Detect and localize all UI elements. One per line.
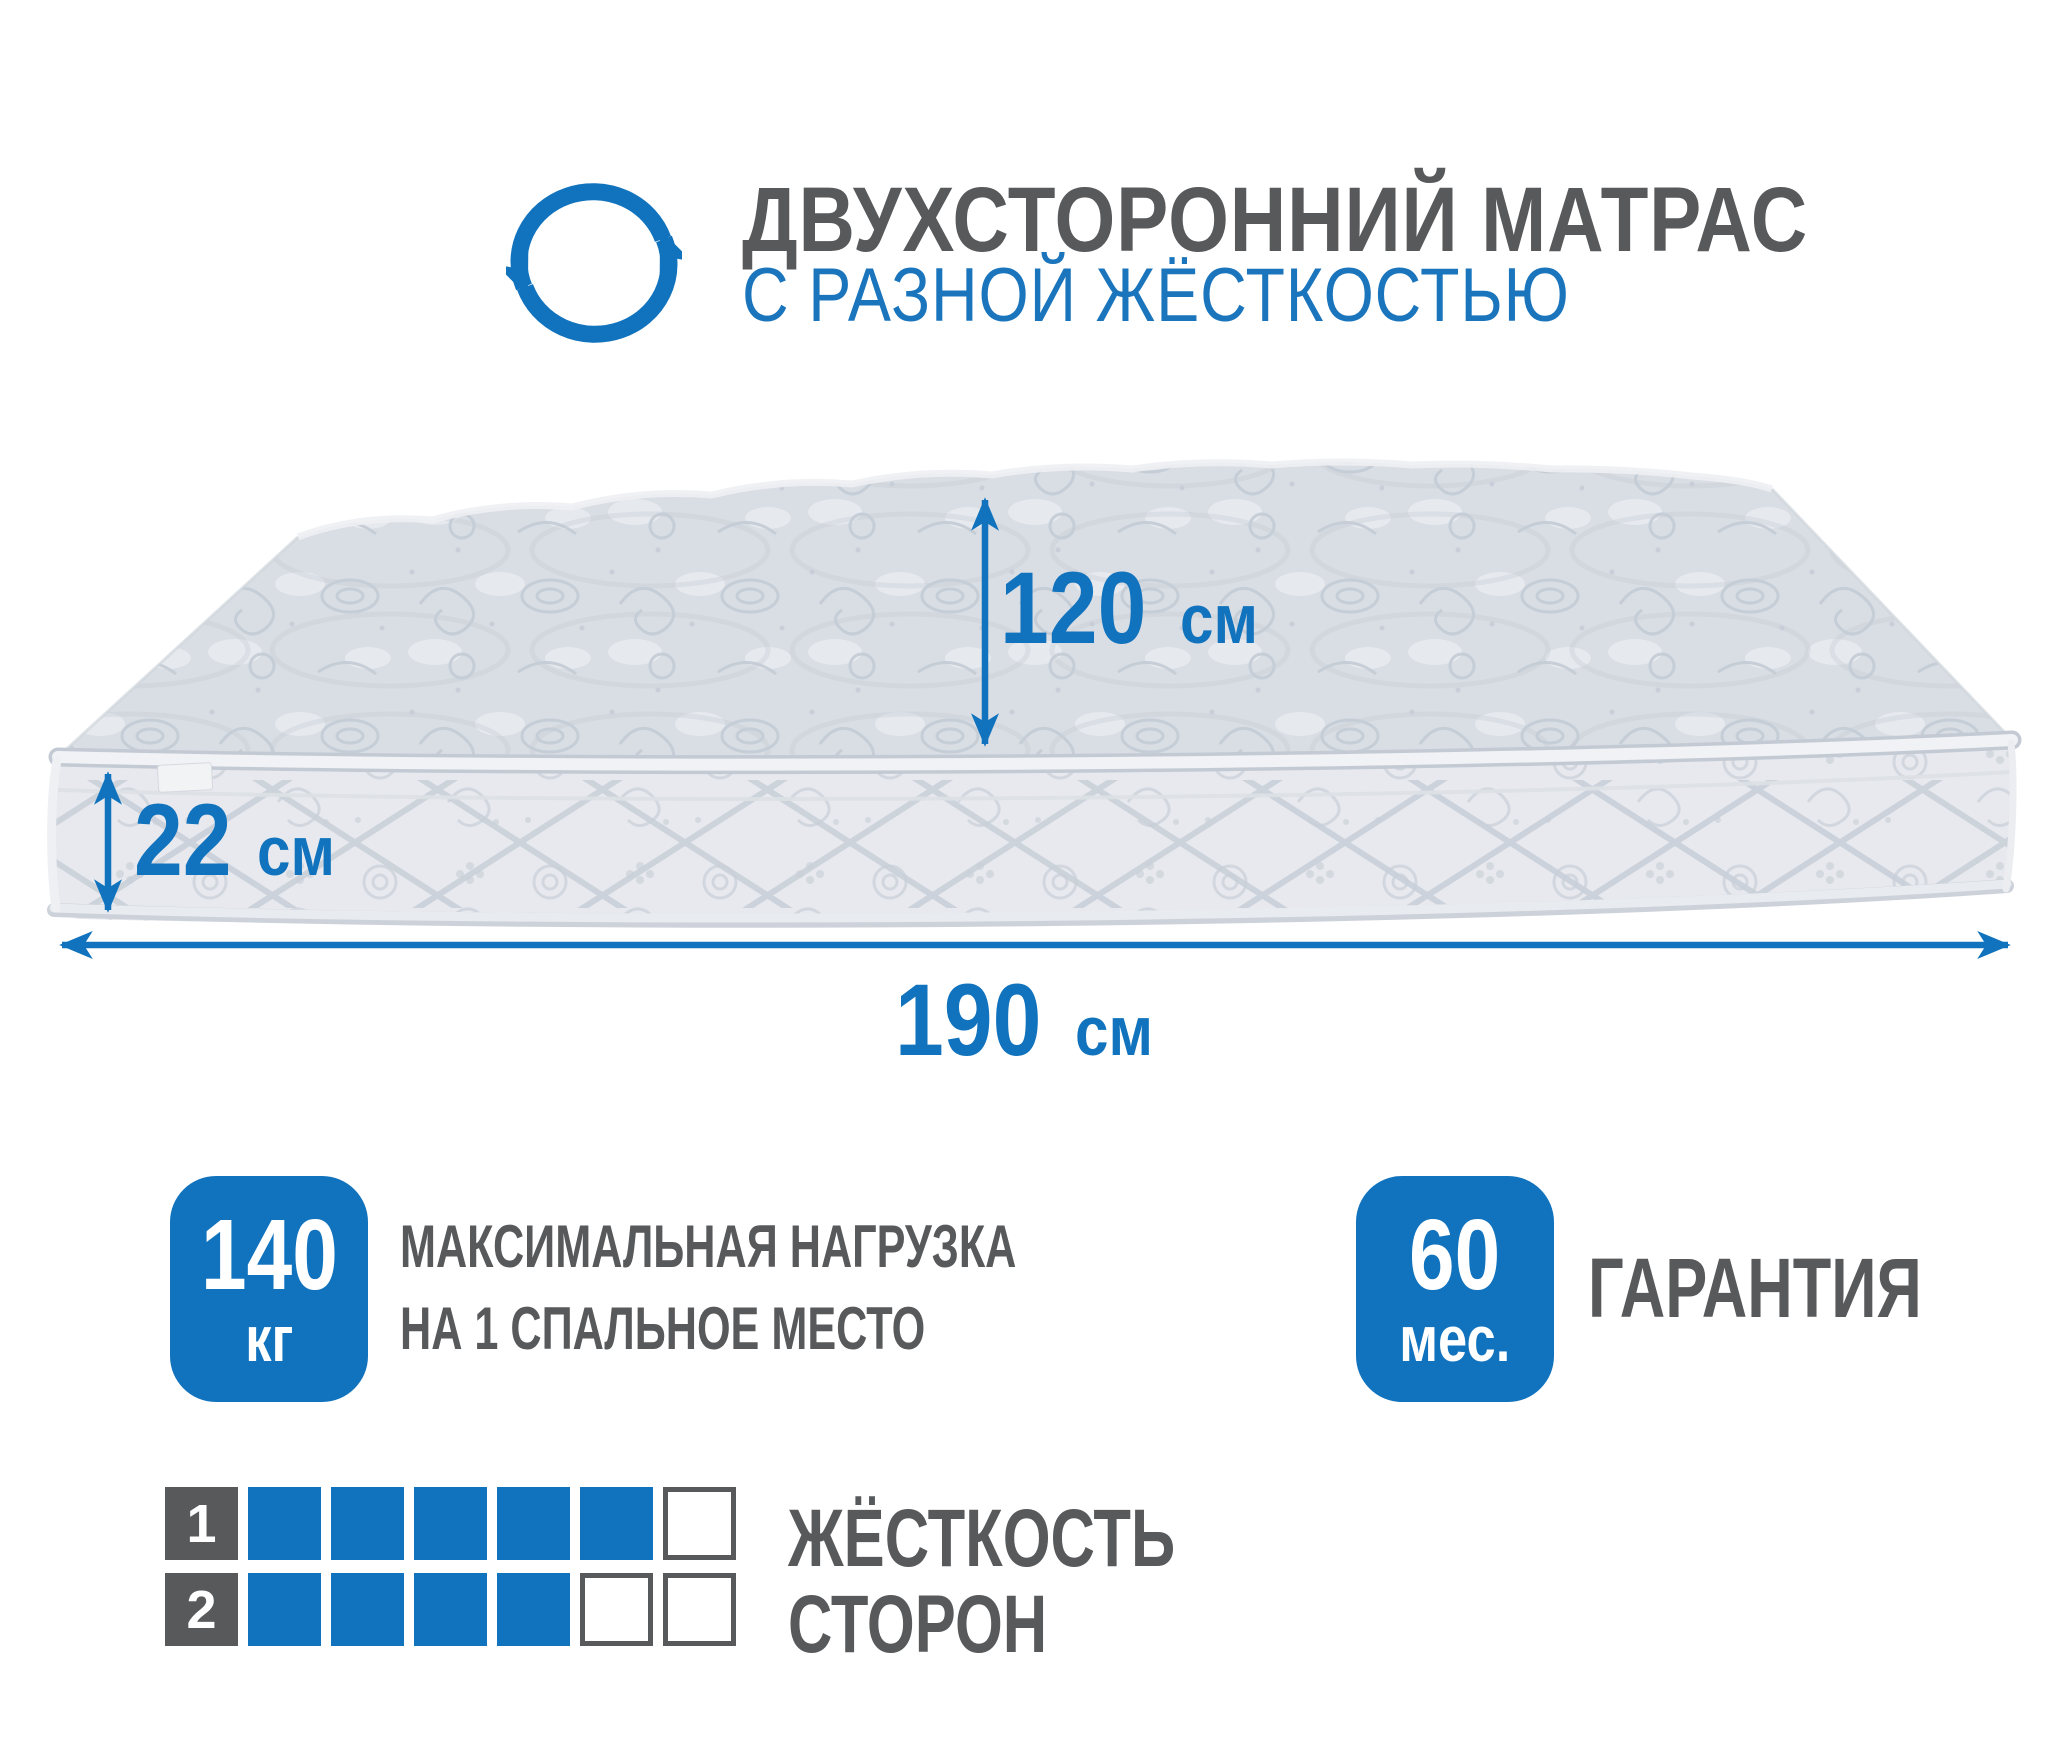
- firmness-caption-line2: СТОРОН: [788, 1578, 1134, 1672]
- firmness-cell-filled: [497, 1487, 570, 1560]
- depth-unit: см: [1180, 579, 1258, 659]
- firmness-cell-empty: [580, 1573, 653, 1646]
- firmness-row: 1: [165, 1487, 736, 1560]
- max-load-text: МАКСИМАЛЬНАЯ НАГРУЗКА НА 1 СПАЛЬНОЕ МЕСТ…: [400, 1206, 1256, 1370]
- firmness-cell-filled: [414, 1487, 487, 1560]
- firmness-cell-filled: [331, 1487, 404, 1560]
- max-load-text-line2: НА 1 СПАЛЬНОЕ МЕСТО: [400, 1288, 925, 1370]
- warranty-badge: 60 мес.: [1356, 1176, 1554, 1402]
- height-unit: см: [257, 811, 335, 891]
- firmness-side-number: 1: [165, 1487, 238, 1560]
- firmness-cell-filled: [414, 1573, 487, 1646]
- max-load-badge: 140 кг: [170, 1176, 368, 1402]
- subtitle: С РАЗНОЙ ЖЁСТКОСТЬЮ: [742, 252, 1716, 339]
- warranty-unit: мес.: [1399, 1306, 1510, 1373]
- firmness-cell-filled: [331, 1573, 404, 1646]
- height-value: 22: [134, 782, 232, 899]
- rotate-icon: [506, 178, 682, 348]
- firmness-cell-filled: [248, 1487, 321, 1560]
- max-load-unit: кг: [245, 1306, 293, 1373]
- length-unit: см: [1075, 991, 1153, 1071]
- firmness-cell-empty: [663, 1487, 736, 1560]
- infographic: ДВУХСТОРОННИЙ МАТРАС С РАЗНОЙ ЖЁСТКОСТЬЮ…: [0, 0, 2048, 1757]
- firmness-rows: 12: [165, 1487, 736, 1646]
- firmness-row: 2: [165, 1573, 736, 1646]
- firmness-cell-empty: [663, 1573, 736, 1646]
- max-load-value: 140: [201, 1204, 338, 1306]
- depth-label: 120 см: [1000, 550, 1271, 667]
- height-label: 22 см: [134, 782, 348, 899]
- firmness-cell-filled: [248, 1573, 321, 1646]
- length-value: 190: [895, 962, 1041, 1079]
- length-label: 190 см: [820, 962, 1240, 1079]
- firmness-cell-filled: [497, 1573, 570, 1646]
- depth-value: 120: [1000, 550, 1146, 667]
- max-load-text-line1: МАКСИМАЛЬНАЯ НАГРУЗКА: [400, 1206, 1016, 1288]
- warranty-value: 60: [1409, 1204, 1500, 1306]
- warranty-label: ГАРАНТИЯ: [1588, 1240, 2033, 1337]
- firmness-cell-filled: [580, 1487, 653, 1560]
- firmness-side-number: 2: [165, 1573, 238, 1646]
- firmness-caption-line1: ЖЁСТКОСТЬ: [788, 1492, 1304, 1586]
